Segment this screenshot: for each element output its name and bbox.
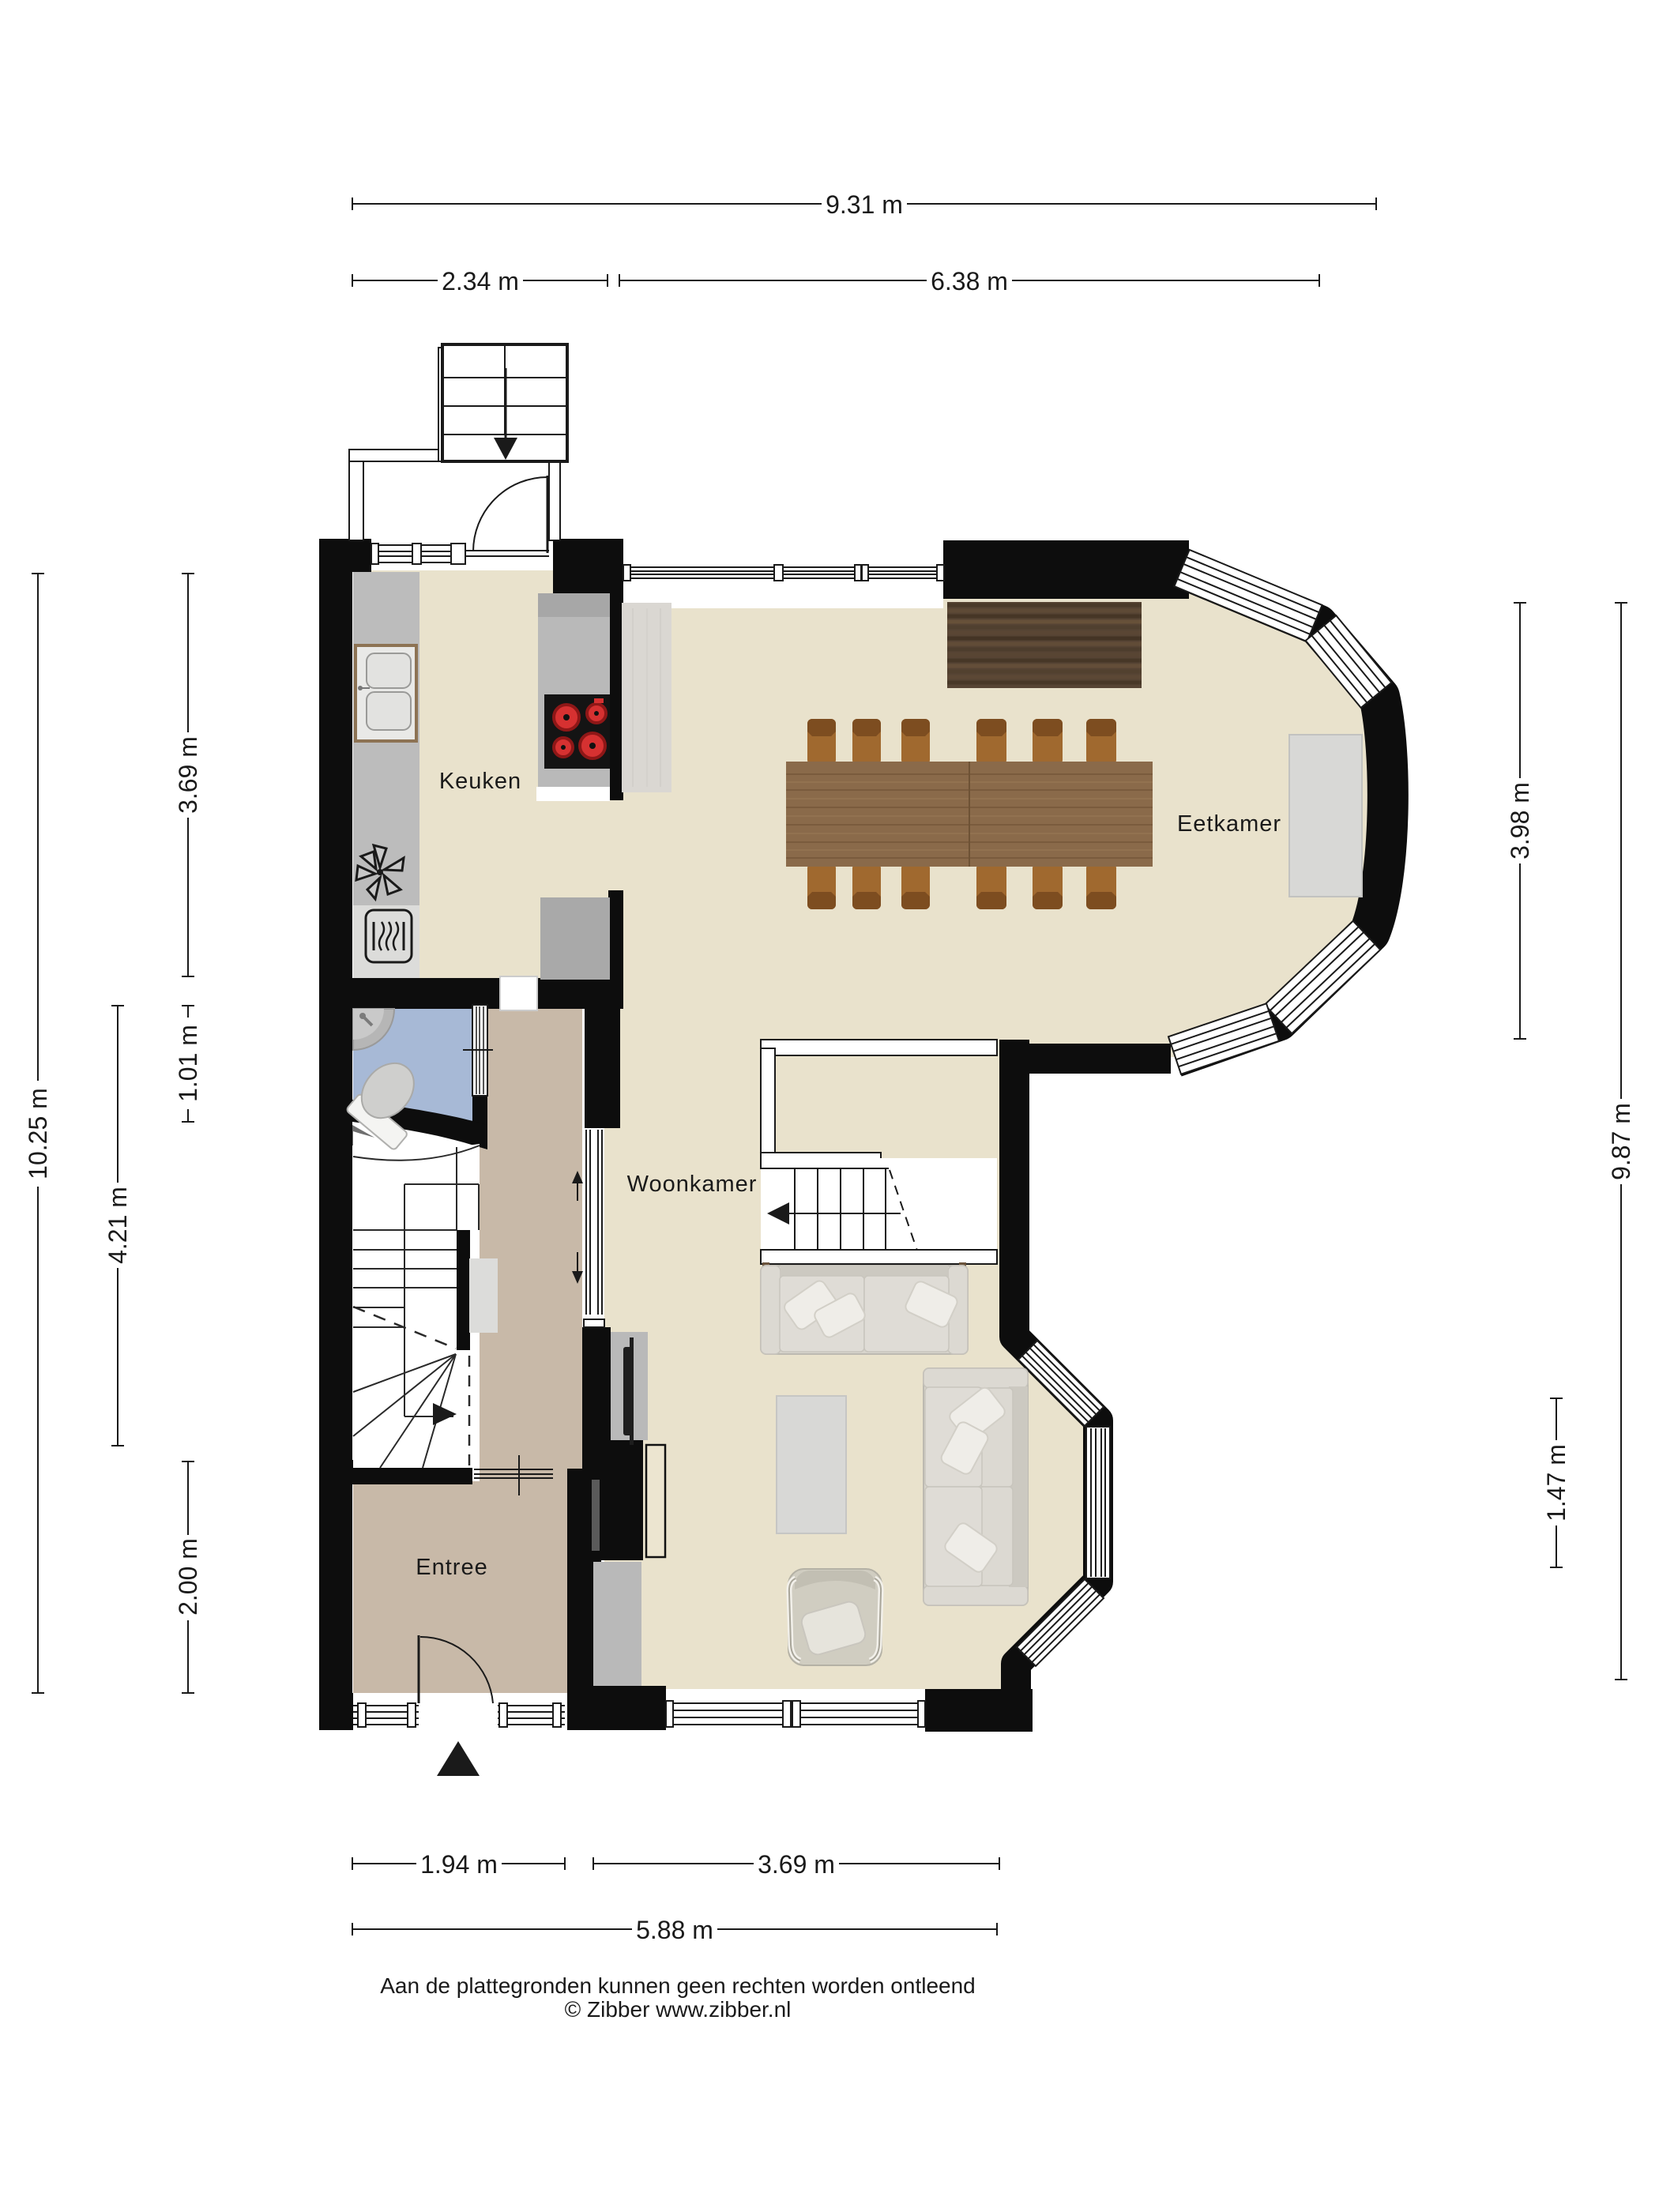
svg-text:1.47 m: 1.47 m	[1542, 1444, 1571, 1522]
svg-text:Aan de plattegronden kunnen ge: Aan de plattegronden kunnen geen rechten…	[380, 1973, 975, 1998]
svg-text:1.94 m: 1.94 m	[420, 1850, 498, 1879]
svg-text:© Zibber www.zibber.nl: © Zibber www.zibber.nl	[565, 1997, 792, 2022]
svg-text:Keuken: Keuken	[439, 769, 521, 794]
svg-text:9.87 m: 9.87 m	[1607, 1103, 1635, 1180]
svg-text:2.00 m: 2.00 m	[174, 1538, 202, 1616]
svg-text:Woonkamer: Woonkamer	[627, 1172, 758, 1197]
svg-text:4.21 m: 4.21 m	[103, 1187, 132, 1264]
svg-text:Eetkamer: Eetkamer	[1177, 811, 1281, 837]
svg-text:Entree: Entree	[416, 1555, 487, 1580]
svg-text:1.01 m: 1.01 m	[174, 1025, 202, 1102]
svg-text:3.69 m: 3.69 m	[174, 736, 202, 814]
svg-text:9.31 m: 9.31 m	[826, 190, 903, 219]
svg-text:5.88 m: 5.88 m	[636, 1916, 713, 1944]
svg-text:3.69 m: 3.69 m	[758, 1850, 835, 1879]
svg-text:6.38 m: 6.38 m	[931, 267, 1008, 295]
svg-text:10.25 m: 10.25 m	[24, 1088, 52, 1179]
svg-text:2.34 m: 2.34 m	[442, 267, 519, 295]
svg-text:3.98 m: 3.98 m	[1506, 782, 1534, 860]
